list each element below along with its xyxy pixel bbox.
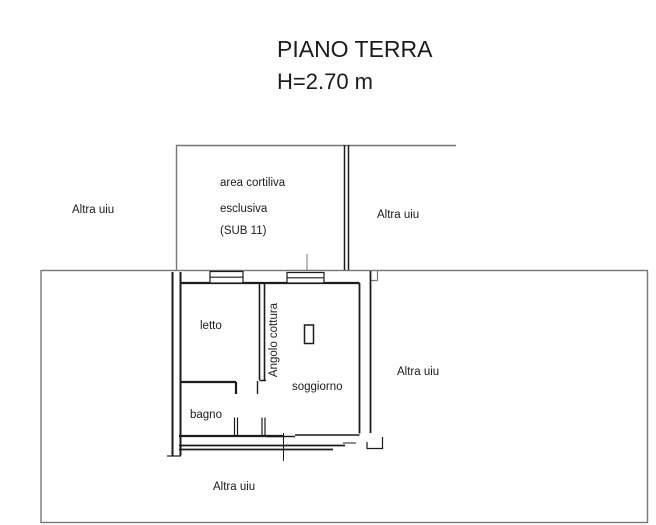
threshold-mark bbox=[367, 437, 383, 449]
page-title: PIANO TERRA bbox=[277, 36, 433, 62]
courtyard-label-line1: area cortiliva bbox=[220, 177, 286, 189]
courtyard-label-line2: esclusiva bbox=[220, 203, 268, 215]
neighbor-label-right-mid: Altra uiu bbox=[397, 366, 439, 378]
floorplan-page: PIANO TERRA H=2.70 m bbox=[0, 0, 656, 525]
neighbor-label-bottom: Altra uiu bbox=[213, 481, 255, 493]
windows bbox=[210, 272, 324, 284]
parcel-outline bbox=[41, 271, 648, 523]
page-subtitle: H=2.70 m bbox=[277, 69, 373, 94]
right-wall-step bbox=[371, 271, 378, 281]
right-wall bbox=[360, 271, 371, 434]
courtyard-label-line3: (SUB 11) bbox=[220, 225, 267, 237]
room-label-soggiorno: soggiorno bbox=[292, 381, 343, 393]
bottom-door-jambs bbox=[235, 418, 266, 436]
cottura-wall bbox=[260, 283, 267, 381]
room-label-bagno: bagno bbox=[190, 409, 222, 421]
lower-exterior-wall bbox=[179, 446, 345, 450]
fixture-rect bbox=[305, 325, 314, 344]
neighbor-label-left: Altra uiu bbox=[72, 204, 114, 216]
letto-bagno-wall bbox=[181, 382, 237, 394]
courtyard-party-wall bbox=[345, 145, 349, 270]
room-label-angolo-cottura: Angolo cottura bbox=[268, 302, 280, 377]
room-label-letto: letto bbox=[200, 320, 222, 332]
neighbor-label-right-top: Altra uiu bbox=[377, 209, 419, 221]
left-wall bbox=[173, 272, 181, 456]
